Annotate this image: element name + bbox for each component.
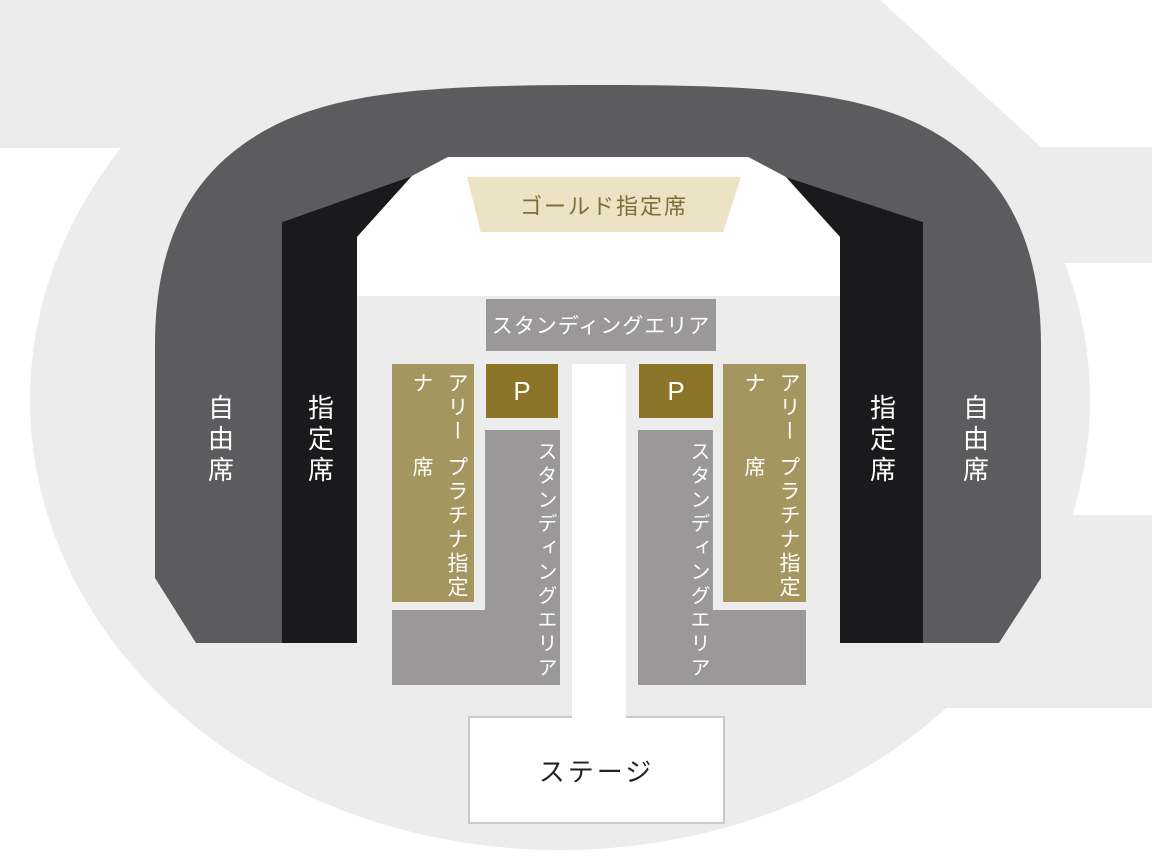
gold-reserved-label: ゴールド指定席 [520, 189, 688, 221]
standing-header-label: スタンディングエリア [492, 310, 711, 340]
section-standing-header: スタンディングエリア [486, 299, 716, 351]
section-arena-platinum-left: アリーナ プラチナ指定席 [392, 364, 474, 602]
stage: ステージ [468, 716, 725, 824]
arena-platinum-left-label: アリーナ プラチナ指定席 [392, 372, 474, 602]
bg-ring-arc [1140, 283, 1152, 508]
reserved-seating-right-label: 指定席 [854, 380, 910, 500]
arena-platinum-right-label: アリーナ プラチナ指定席 [723, 372, 806, 602]
standing-left-label: スタンディングエリア [485, 436, 560, 685]
section-gold-reserved: ゴールド指定席 [467, 177, 741, 232]
section-premium-left: P [486, 364, 558, 418]
premium-right-label: P [667, 376, 684, 407]
stage-runway [572, 364, 626, 720]
standing-right-label: スタンディングエリア [638, 436, 713, 685]
section-premium-right: P [639, 364, 713, 418]
stage-label: ステージ [539, 752, 654, 789]
free-seating-left-label: 自由席 [192, 380, 248, 500]
section-arena-platinum-right: アリーナ プラチナ指定席 [723, 364, 806, 602]
reserved-seating-left-label: 指定席 [292, 380, 348, 500]
premium-left-label: P [513, 376, 530, 407]
free-seating-right-label: 自由席 [947, 380, 1003, 500]
venue-seating-map: ゴールド指定席 スタンディングエリア P P アリーナ プラチナ指定席 アリーナ… [0, 0, 1152, 864]
